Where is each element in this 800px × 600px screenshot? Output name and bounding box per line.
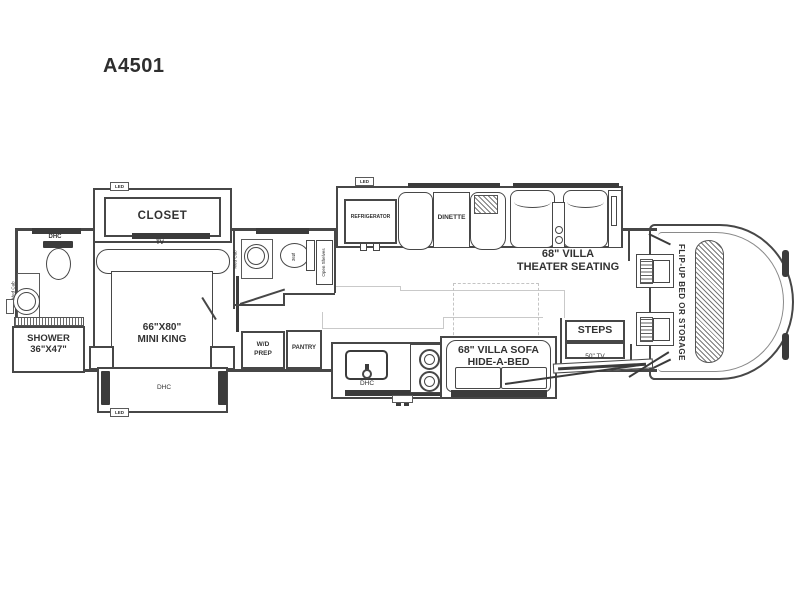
headlight-bar (782, 333, 789, 360)
driver-seat-cushion (653, 260, 670, 283)
flip-up-bed-label: FLIP-UP BED OR STORAGE (672, 238, 690, 366)
shower-label-line2: 36"X47" (14, 345, 83, 356)
theater-label: 68" VILLA THEATER SEATING (512, 248, 624, 273)
bath2-door-swing (240, 289, 285, 305)
wall-bath2-bottom (283, 293, 335, 295)
steps-label: STEPS (566, 324, 624, 336)
floor-line (322, 328, 443, 329)
kitchen-vent-foot (404, 403, 409, 406)
wall-cockpit-upper (628, 231, 630, 261)
sofa-label-line1: 68" VILLA SOFA (448, 344, 549, 356)
sofa-cushion (455, 367, 501, 389)
theater-label-line1: 68" VILLA (512, 248, 624, 261)
bed-slide-post (218, 371, 227, 405)
wd-prep-label: W/D PREP (243, 340, 283, 358)
headlight-bar (782, 250, 789, 277)
bed-label: 66"X80" MINI KING (126, 322, 198, 345)
theater-seat-curve (567, 196, 604, 208)
windshield-dash (695, 240, 724, 363)
pantry-label: PANTRY (287, 345, 321, 352)
sofa-awning-bar (451, 390, 547, 397)
sofa-label: 68" VILLA SOFA HIDE-A-BED (448, 344, 549, 368)
bedroom-tv (132, 233, 210, 239)
dinette-bench (398, 192, 433, 250)
faucet (362, 369, 372, 379)
door-hardware (6, 299, 14, 314)
mid-bath-sink-bowl (247, 247, 265, 265)
mid-bath-toilet-tank (306, 240, 315, 271)
kitchen-dhc-label: DHC (352, 380, 382, 387)
wd-prep-line2: PREP (243, 349, 283, 358)
fridge-led-label: LED (355, 179, 374, 184)
open-shelves-label: Open Shelves (321, 240, 326, 285)
cupholder (555, 236, 563, 244)
fridge-leg (360, 243, 367, 251)
passenger-seat-back (640, 317, 653, 342)
toilet (46, 248, 71, 280)
theater-seat-curve (514, 196, 551, 208)
cupholder (555, 226, 563, 234)
shower-label: SHOWER 36"X47" (14, 334, 83, 356)
theater-side-slot (611, 196, 617, 226)
toilet-dim-wrap: 36Ø (291, 245, 301, 269)
dinette-awning-bar (408, 183, 500, 188)
closet-led-label: LED (110, 184, 129, 189)
wd-prep-line1: W/D (243, 340, 283, 349)
dinette-seat-pad (474, 195, 498, 214)
wall-bath2-bottom2 (234, 304, 285, 306)
kitchen-vent (392, 395, 413, 403)
theater-awning-bar (513, 183, 619, 188)
theater-label-line2: THEATER SEATING (512, 261, 624, 274)
floor-line (564, 290, 565, 318)
refrigerator (344, 199, 397, 244)
bedroom-tv-label: TV (146, 240, 174, 247)
shower-door-track (14, 317, 84, 326)
refrigerator-label: REFRIGERATOR (345, 215, 396, 221)
mid-med-cab-label: Med Cab (233, 245, 238, 275)
closet-label: CLOSET (104, 210, 221, 223)
burner-center (424, 376, 435, 387)
open-shelves-wrap: Open Shelves (316, 240, 333, 285)
bed-size-label: 66"X80" (126, 322, 198, 334)
toilet-tank (43, 241, 73, 248)
driver-seat-back (640, 259, 653, 284)
bed-slide-post (101, 371, 110, 405)
burner-center (424, 354, 435, 365)
floor-line (443, 317, 444, 329)
page-title: A4501 (103, 55, 183, 78)
passenger-seat-cushion (653, 318, 670, 341)
fridge-leg (373, 243, 380, 251)
bed-slide-led-label: LED (110, 410, 129, 415)
kitchen-vent-foot (396, 403, 401, 406)
mid-bath-window-bar (256, 228, 309, 234)
toilet-dim-label: 36Ø (291, 245, 296, 269)
bed-type-label: MINI KING (126, 334, 198, 346)
dinette-label: DINETTE (434, 214, 469, 221)
rear-bath-cabinet-label: DHC (41, 234, 69, 241)
floor-line (322, 312, 323, 329)
rv-floorplan: A4501 DHC Med Cab SHOWER 36"X47" (0, 0, 800, 600)
mid-med-cab-wrap: Med Cab (233, 245, 244, 275)
living-tv-label: 50" TV (575, 353, 615, 360)
floor-line (335, 286, 401, 287)
bed-slide-dhc-label: DHC (146, 384, 182, 391)
